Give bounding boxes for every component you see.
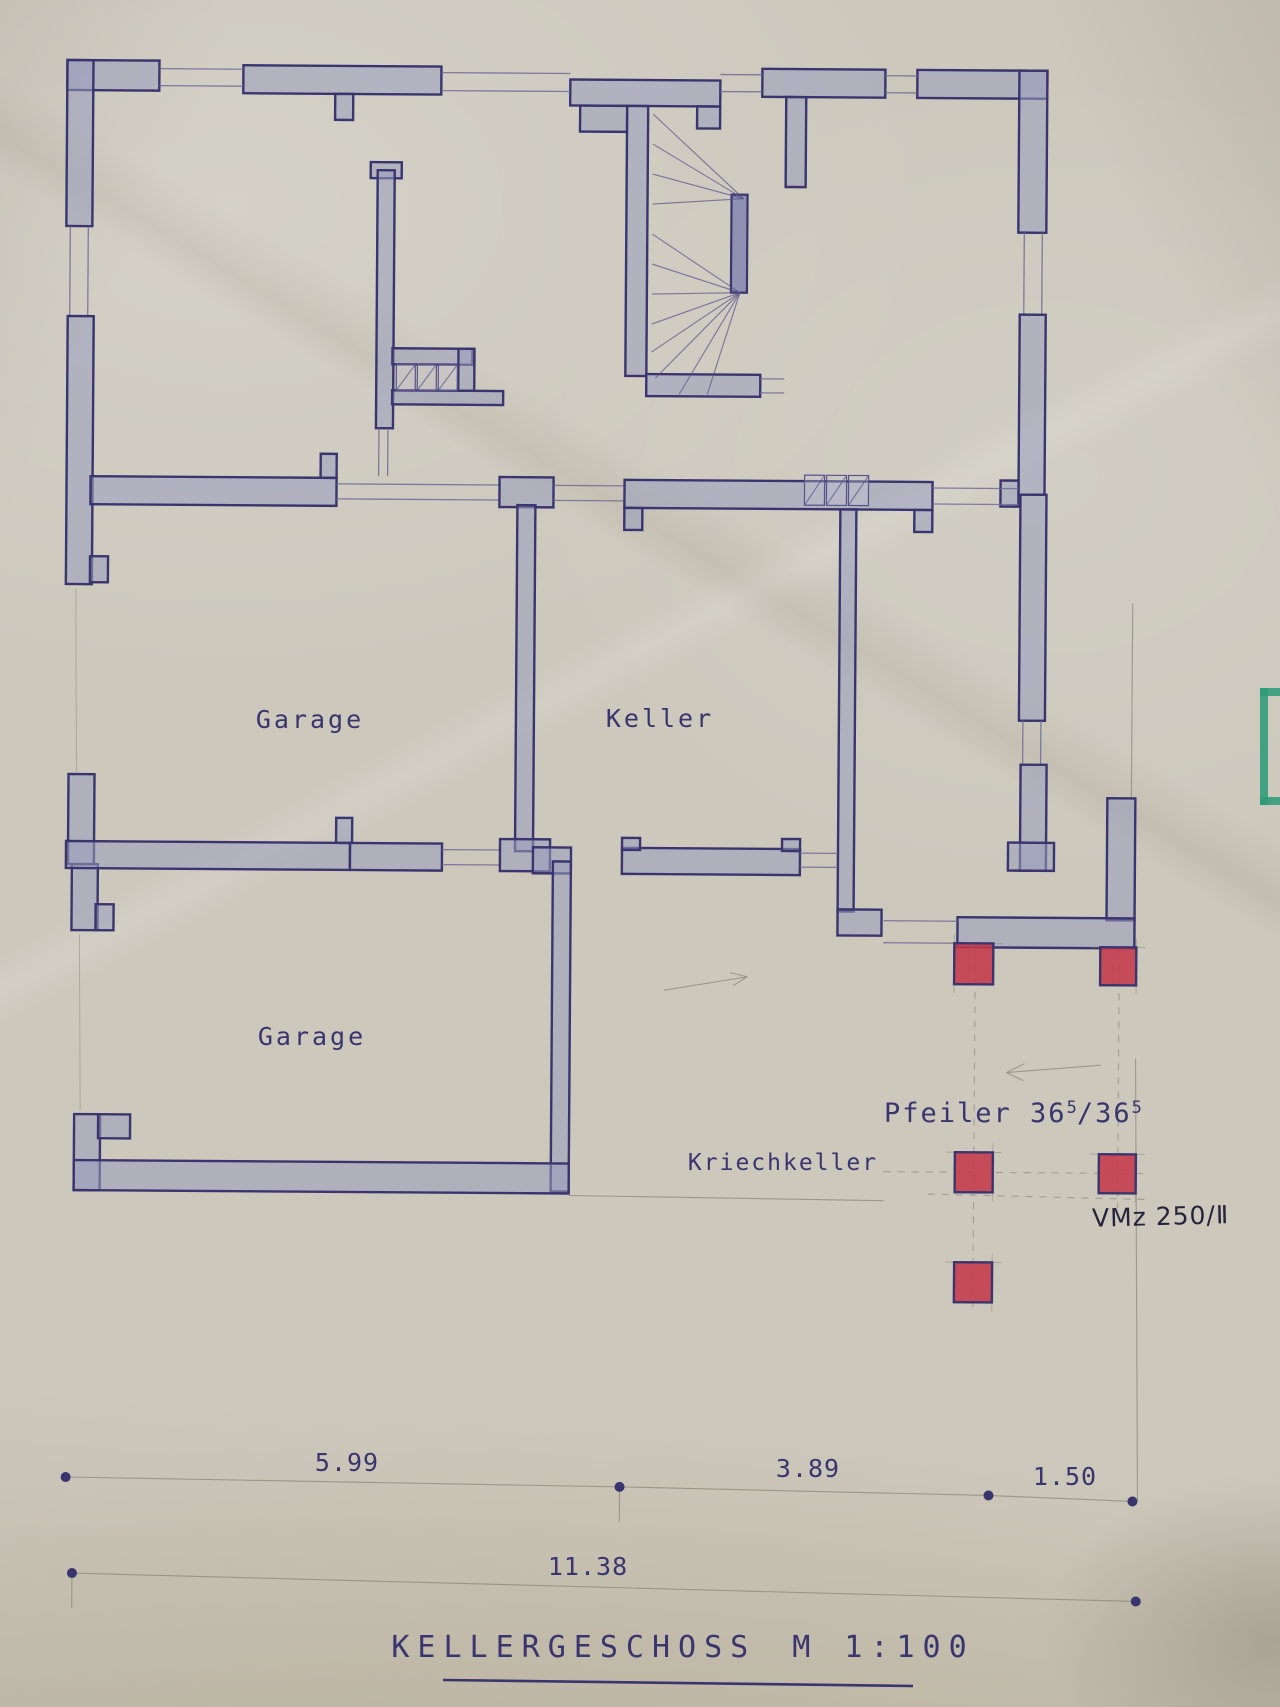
wall-segment bbox=[243, 65, 441, 94]
plan-scale: M 1:100 bbox=[792, 1630, 974, 1665]
wall-segment bbox=[624, 480, 932, 510]
wall-segment bbox=[624, 508, 642, 530]
wall-segment bbox=[622, 848, 800, 875]
wall-segment bbox=[321, 454, 337, 478]
wall-segment bbox=[66, 841, 350, 870]
wall-segment bbox=[837, 909, 881, 935]
dimension-label-2: 3.89 bbox=[748, 1454, 868, 1483]
wall-segment bbox=[762, 69, 885, 98]
dimension-dot bbox=[615, 1482, 625, 1492]
plan-title: KELLERGESCHOSS bbox=[391, 1630, 756, 1665]
wall-segment bbox=[1107, 798, 1136, 920]
room-label-garage-upper: Garage bbox=[235, 705, 385, 734]
wall-segment bbox=[782, 839, 800, 851]
pillar bbox=[954, 1262, 992, 1302]
pillar bbox=[954, 943, 993, 984]
blueprint-paper: Garage Keller Garage Kriechkeller Pfeile… bbox=[0, 0, 1280, 1707]
wall-segment bbox=[335, 94, 353, 120]
brick-annotation: VMz 250/Ⅱ bbox=[1092, 1200, 1230, 1233]
wall-segment bbox=[697, 106, 720, 128]
wall-segment bbox=[914, 510, 932, 532]
wall-segment bbox=[350, 843, 442, 871]
wall-segment bbox=[786, 97, 807, 187]
wall-segment bbox=[66, 60, 93, 226]
wall-segment bbox=[71, 864, 97, 930]
wall-segment bbox=[74, 1160, 569, 1193]
dimension-label-total: 11.38 bbox=[528, 1552, 648, 1581]
crawlspace-grid-group bbox=[566, 948, 1149, 1502]
wall-segment bbox=[1018, 71, 1047, 233]
pfeiler-sup1: 5 bbox=[1067, 1098, 1077, 1118]
wall-segment bbox=[580, 106, 627, 132]
room-label-keller: Keller bbox=[585, 704, 735, 733]
wall-segment bbox=[95, 904, 113, 930]
wall-segment bbox=[622, 838, 640, 850]
dimension-dot bbox=[983, 1490, 993, 1500]
green-sheet-corner bbox=[1260, 688, 1280, 805]
wall-segment bbox=[515, 505, 535, 851]
wall-segment bbox=[1008, 843, 1054, 871]
room-label-kriechkeller: Kriechkeller bbox=[683, 1150, 883, 1176]
dimension-dot bbox=[67, 1568, 77, 1578]
staircase-group bbox=[625, 106, 786, 397]
pfeiler-text: Pfeiler 36 bbox=[884, 1098, 1067, 1129]
wall-segment bbox=[336, 818, 352, 843]
wall-segment bbox=[646, 374, 760, 397]
walls-group bbox=[60, 60, 1141, 1197]
stair-newel-post bbox=[731, 195, 748, 293]
wall-segment bbox=[458, 349, 474, 391]
pillar bbox=[1099, 1154, 1136, 1193]
steps-hatch-group bbox=[396, 364, 457, 390]
wall-segment bbox=[1018, 315, 1045, 495]
dimension-dot bbox=[61, 1472, 71, 1482]
wall-segment bbox=[1000, 481, 1018, 507]
pillar bbox=[1100, 947, 1136, 985]
chimney-hatch-group bbox=[804, 475, 868, 505]
wall-segment bbox=[625, 106, 648, 376]
dimension-dot bbox=[1127, 1496, 1137, 1506]
wall-segment bbox=[838, 509, 857, 911]
wall-segment bbox=[499, 477, 553, 507]
title-underline bbox=[443, 1680, 913, 1686]
wall-segment bbox=[392, 390, 503, 405]
wall-segment bbox=[570, 79, 720, 106]
pillar bbox=[955, 1152, 993, 1192]
dimension-dot bbox=[1131, 1596, 1141, 1606]
wall-segment bbox=[98, 1114, 130, 1138]
dimension-lines-group bbox=[60, 1472, 1142, 1616]
pfeiler-sup2: 5 bbox=[1132, 1098, 1142, 1118]
pillar-annotation: Pfeiler 365/365 bbox=[884, 1098, 1142, 1129]
dimension-label-1: 5.99 bbox=[287, 1448, 407, 1477]
drawing-title-block: KELLERGESCHOSS M 1:100 bbox=[383, 1630, 983, 1665]
dimension-label-3: 1.50 bbox=[1005, 1462, 1125, 1491]
wall-segment bbox=[1019, 495, 1047, 721]
floor-plan-drawing bbox=[0, 0, 1280, 1707]
room-label-garage-lower: Garage bbox=[237, 1022, 387, 1051]
wall-segment bbox=[66, 316, 94, 584]
plan-group bbox=[57, 60, 1156, 1616]
pfeiler-mid: /36 bbox=[1077, 1098, 1132, 1129]
wall-segment bbox=[90, 476, 336, 506]
wall-segment bbox=[551, 861, 571, 1191]
wall-segment bbox=[90, 556, 108, 582]
